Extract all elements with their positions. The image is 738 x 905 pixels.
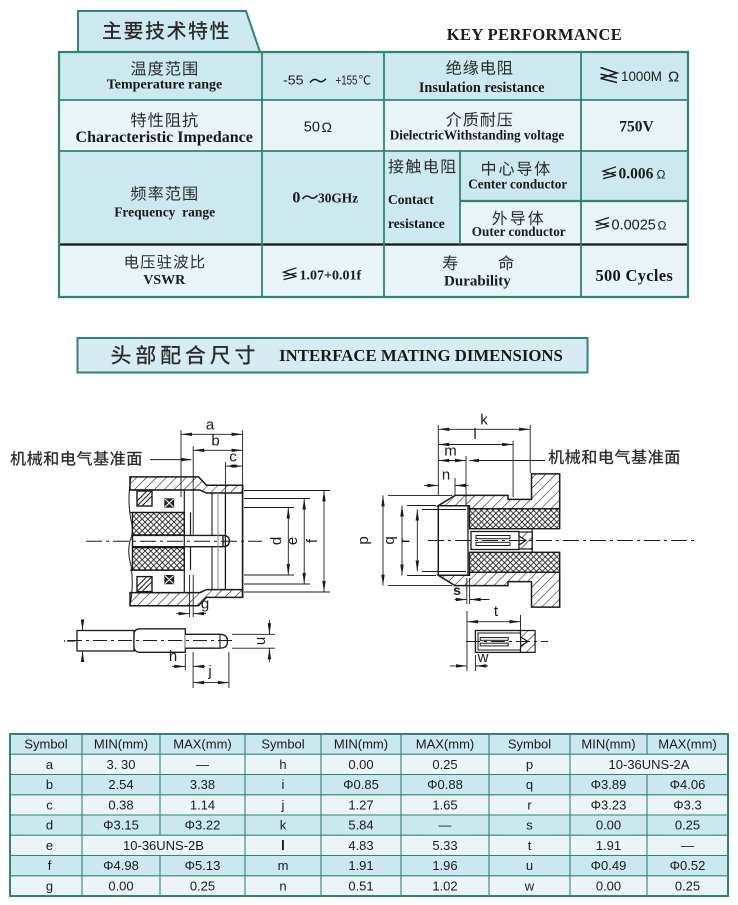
svg-text:resistance: resistance <box>388 216 445 231</box>
svg-text:l: l <box>281 837 285 853</box>
svg-text:3. 30: 3. 30 <box>107 757 136 772</box>
svg-text:j: j <box>281 798 285 813</box>
svg-text:1.27: 1.27 <box>348 798 373 813</box>
svg-text:10-36UNS-2A: 10-36UNS-2A <box>609 757 690 772</box>
svg-text:f: f <box>48 858 52 873</box>
svg-text:s: s <box>453 582 461 598</box>
svg-text:p: p <box>355 536 372 544</box>
svg-text:d: d <box>268 537 285 545</box>
svg-text:1.65: 1.65 <box>432 798 457 813</box>
svg-text:u: u <box>526 858 533 873</box>
svg-text:+155: +155 <box>336 73 358 88</box>
svg-text:750V: 750V <box>619 119 654 136</box>
svg-text:1.96: 1.96 <box>432 858 457 873</box>
svg-text:Outer conductor: Outer conductor <box>472 224 566 239</box>
svg-text:Φ4.98: Φ4.98 <box>103 858 139 873</box>
svg-text:u: u <box>252 637 269 645</box>
svg-text:5.33: 5.33 <box>432 838 457 853</box>
svg-text:q: q <box>526 777 533 792</box>
svg-text:1.02: 1.02 <box>432 879 457 894</box>
svg-text:Insulation resistance: Insulation resistance <box>419 80 545 96</box>
svg-text:Φ3.89: Φ3.89 <box>591 777 627 792</box>
svg-text:e: e <box>284 537 301 545</box>
svg-text:MIN(mm): MIN(mm) <box>94 737 148 752</box>
svg-text:30GHz: 30GHz <box>318 191 358 206</box>
svg-text:j: j <box>207 663 211 680</box>
svg-text:Ω: Ω <box>668 69 679 86</box>
svg-text:a: a <box>46 757 54 772</box>
svg-text:0.00: 0.00 <box>596 818 621 833</box>
svg-text:r: r <box>527 798 532 813</box>
svg-text:0.00: 0.00 <box>108 879 133 894</box>
svg-text:Temperature range: Temperature range <box>107 78 222 93</box>
svg-text:—: — <box>439 818 452 833</box>
svg-text:0.51: 0.51 <box>348 879 373 894</box>
svg-text:INTERFACE MATING DIMENSIONS: INTERFACE MATING DIMENSIONS <box>279 346 563 365</box>
svg-text:Contact: Contact <box>388 192 434 207</box>
svg-text:0.006: 0.006 <box>619 166 654 183</box>
svg-text:—: — <box>681 838 694 853</box>
svg-text:k: k <box>280 818 287 833</box>
svg-text:DielectricWithstanding voltage: DielectricWithstanding voltage <box>390 128 565 143</box>
svg-text:c: c <box>46 798 53 813</box>
svg-text:0.25: 0.25 <box>432 757 457 772</box>
svg-text:1.07+0.01f: 1.07+0.01f <box>300 269 362 284</box>
svg-text:e: e <box>46 838 53 853</box>
svg-text:3.38: 3.38 <box>190 777 215 792</box>
svg-text:5.84: 5.84 <box>348 818 373 833</box>
svg-text:Φ0.88: Φ0.88 <box>427 777 463 792</box>
svg-text:MAX(mm): MAX(mm) <box>658 737 717 752</box>
svg-text:w: w <box>524 879 535 894</box>
svg-text:MAX(mm): MAX(mm) <box>173 737 232 752</box>
svg-text:KEY PERFORMANCE: KEY PERFORMANCE <box>447 25 622 44</box>
svg-text:0.25: 0.25 <box>190 879 215 894</box>
svg-text:Center conductor: Center conductor <box>468 177 567 192</box>
svg-text:m: m <box>278 858 289 873</box>
svg-text:n: n <box>442 467 450 484</box>
svg-text:a: a <box>206 417 215 434</box>
svg-text:Φ0.85: Φ0.85 <box>343 777 379 792</box>
svg-text:b: b <box>46 777 53 792</box>
svg-text:k: k <box>480 412 488 429</box>
svg-text:n: n <box>279 879 286 894</box>
svg-text:MAX(mm): MAX(mm) <box>416 737 475 752</box>
svg-text:1.91: 1.91 <box>596 838 621 853</box>
svg-text:Symbol: Symbol <box>508 737 551 752</box>
svg-text:h: h <box>169 648 177 665</box>
svg-text:d: d <box>46 818 53 833</box>
svg-text:50: 50 <box>304 120 320 136</box>
svg-text:1.91: 1.91 <box>348 858 373 873</box>
svg-text:10-36UNS-2B: 10-36UNS-2B <box>123 838 204 853</box>
svg-text:-55: -55 <box>283 73 304 88</box>
svg-text:Φ3.23: Φ3.23 <box>591 798 627 813</box>
svg-text:Φ0.49: Φ0.49 <box>591 858 627 873</box>
svg-text:i: i <box>62 639 79 642</box>
svg-text:Ω: Ω <box>322 119 332 135</box>
svg-text:Frequency range: Frequency range <box>114 205 215 220</box>
svg-text:Φ3.3: Φ3.3 <box>673 798 701 813</box>
svg-text:c: c <box>229 449 237 466</box>
svg-text:g: g <box>46 879 53 894</box>
svg-text:0.0025: 0.0025 <box>612 218 656 234</box>
svg-text:Durability: Durability <box>444 274 511 290</box>
svg-text:Φ4.06: Φ4.06 <box>670 777 706 792</box>
svg-text:MIN(mm): MIN(mm) <box>334 737 388 752</box>
svg-text:Symbol: Symbol <box>261 737 304 752</box>
svg-text:0.38: 0.38 <box>108 798 133 813</box>
svg-text:i: i <box>282 777 285 792</box>
svg-text:Φ5.13: Φ5.13 <box>185 858 221 873</box>
svg-text:0.25: 0.25 <box>675 818 700 833</box>
svg-text:l: l <box>473 426 476 443</box>
svg-text:g: g <box>201 596 209 613</box>
svg-text:Characteristic Impedance: Characteristic Impedance <box>76 129 253 146</box>
svg-text:1000M: 1000M <box>621 69 662 84</box>
svg-text:0: 0 <box>292 190 300 207</box>
svg-text:Φ3.15: Φ3.15 <box>103 818 139 833</box>
svg-text:r: r <box>397 538 414 543</box>
svg-text:4.83: 4.83 <box>348 838 373 853</box>
svg-text:t: t <box>528 838 532 853</box>
svg-text:500 Cycles: 500 Cycles <box>595 266 673 285</box>
svg-text:0.00: 0.00 <box>596 879 621 894</box>
svg-text:q: q <box>381 536 398 544</box>
svg-text:VSWR: VSWR <box>143 273 186 288</box>
svg-text:w: w <box>477 649 489 666</box>
svg-text:MIN(mm): MIN(mm) <box>581 737 635 752</box>
svg-text:h: h <box>279 757 286 772</box>
svg-text:b: b <box>211 432 219 449</box>
svg-text:0.00: 0.00 <box>348 757 373 772</box>
svg-text:Φ0.52: Φ0.52 <box>670 858 706 873</box>
svg-text:s: s <box>526 818 533 833</box>
svg-text:m: m <box>444 443 457 460</box>
svg-text:Φ3.22: Φ3.22 <box>185 818 221 833</box>
svg-text:—: — <box>196 757 209 772</box>
svg-text:Symbol: Symbol <box>24 737 67 752</box>
svg-text:Ω: Ω <box>658 219 667 233</box>
svg-text:0.25: 0.25 <box>675 879 700 894</box>
svg-text:1.14: 1.14 <box>190 798 215 813</box>
svg-text:Ω: Ω <box>657 168 666 182</box>
svg-text:p: p <box>526 757 533 772</box>
svg-text:2.54: 2.54 <box>108 777 133 792</box>
